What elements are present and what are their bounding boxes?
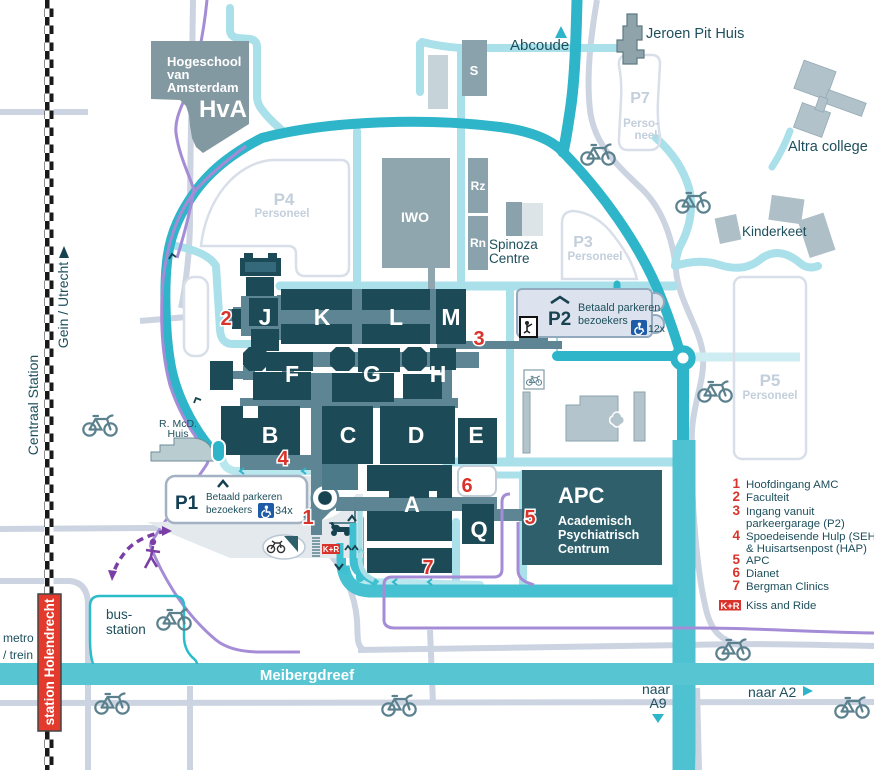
svg-text:APC: APC — [558, 483, 605, 508]
svg-text:»: » — [287, 540, 294, 554]
svg-text:P1: P1 — [175, 493, 199, 514]
svg-text:4: 4 — [277, 448, 289, 470]
svg-text:Q: Q — [470, 517, 487, 542]
svg-text:P7: P7 — [630, 90, 650, 107]
svg-text:Academisch: Academisch — [558, 514, 632, 528]
svg-text:Rz: Rz — [471, 179, 486, 193]
svg-text:E: E — [468, 422, 483, 448]
svg-text:Psychiatrisch: Psychiatrisch — [558, 528, 639, 542]
svg-text:bezoekers: bezoekers — [206, 505, 252, 516]
svg-text:2: 2 — [220, 308, 231, 330]
svg-text:Ingang vanuit: Ingang vanuit — [746, 506, 815, 518]
svg-text:J: J — [259, 304, 272, 330]
svg-text:Centrum: Centrum — [558, 542, 609, 556]
svg-text:34x: 34x — [275, 505, 293, 517]
svg-text:P5: P5 — [760, 371, 781, 390]
svg-text:Amsterdam: Amsterdam — [167, 80, 239, 95]
svg-text:Personeel: Personeel — [743, 390, 798, 402]
svg-text:Dianet: Dianet — [746, 568, 780, 580]
svg-text:Kinderkeet: Kinderkeet — [742, 224, 807, 239]
svg-text:Bergman Clinics: Bergman Clinics — [746, 581, 829, 593]
svg-text:Personeel: Personeel — [568, 251, 623, 263]
svg-text:Hoofdingang AMC: Hoofdingang AMC — [746, 479, 838, 491]
svg-text:Betaald parkeren: Betaald parkeren — [578, 302, 660, 314]
svg-text:Jeroen Pit Huis: Jeroen Pit Huis — [646, 26, 744, 42]
svg-text:H: H — [430, 361, 447, 387]
svg-text:Centraal Station: Centraal Station — [25, 355, 41, 455]
svg-text:Spoedeisende Hulp (SEH): Spoedeisende Hulp (SEH) — [746, 531, 874, 543]
svg-text:G: G — [363, 361, 381, 387]
svg-text:1: 1 — [302, 507, 313, 529]
svg-text:Huis: Huis — [167, 428, 188, 440]
svg-text:F: F — [285, 361, 299, 387]
svg-text:parkeergarage (P2): parkeergarage (P2) — [746, 518, 845, 530]
svg-text:Perso-: Perso- — [623, 118, 659, 130]
svg-text:P4: P4 — [274, 190, 295, 209]
svg-text:L: L — [389, 304, 403, 330]
svg-text:Abcoude: Abcoude — [510, 37, 569, 54]
svg-text:7: 7 — [732, 578, 740, 593]
svg-text:Betaald parkeren: Betaald parkeren — [206, 492, 282, 503]
svg-text:Altra college: Altra college — [788, 139, 868, 155]
svg-text:2: 2 — [732, 489, 740, 504]
svg-text:Rn: Rn — [470, 236, 486, 250]
svg-text:neel: neel — [634, 130, 657, 142]
svg-text:3: 3 — [473, 328, 484, 350]
svg-text:K: K — [314, 304, 331, 330]
svg-text:P2: P2 — [548, 309, 571, 330]
svg-text:7: 7 — [422, 557, 433, 579]
svg-text:naar A2: naar A2 — [748, 684, 796, 700]
svg-text:K+R: K+R — [323, 545, 339, 554]
svg-text:station Holendrecht: station Holendrecht — [42, 598, 57, 725]
svg-text:station: station — [106, 622, 146, 637]
svg-text:/ trein: / trein — [3, 648, 33, 662]
svg-text:IWO: IWO — [401, 209, 429, 225]
svg-text:6: 6 — [461, 475, 472, 497]
svg-text:A9: A9 — [649, 695, 666, 711]
svg-text:B: B — [262, 422, 279, 448]
svg-text:C: C — [340, 422, 357, 448]
svg-text:3: 3 — [732, 503, 740, 518]
svg-text:& Huisartsenpost (HAP): & Huisartsenpost (HAP) — [746, 543, 867, 555]
svg-text:Faculteit: Faculteit — [746, 492, 790, 504]
svg-text:bezoekers: bezoekers — [578, 315, 628, 327]
svg-text:12x: 12x — [648, 323, 666, 335]
svg-text:4: 4 — [732, 528, 740, 543]
svg-text:Spinoza: Spinoza — [489, 237, 538, 252]
svg-text:D: D — [408, 422, 425, 448]
svg-text:Centre: Centre — [489, 251, 530, 266]
svg-text:P3: P3 — [573, 234, 593, 251]
svg-text:metro: metro — [3, 631, 34, 645]
svg-text:M: M — [441, 304, 460, 330]
svg-text:HvA: HvA — [199, 96, 247, 123]
svg-text:Personeel: Personeel — [255, 208, 310, 220]
svg-text:Gein / Utrecht: Gein / Utrecht — [55, 262, 71, 348]
svg-text:Kiss and Ride: Kiss and Ride — [746, 600, 816, 612]
svg-text:bus-: bus- — [106, 607, 132, 622]
svg-text:APC: APC — [746, 555, 769, 567]
svg-text:S: S — [470, 63, 479, 78]
svg-text:K+R: K+R — [720, 601, 739, 612]
svg-text:A: A — [404, 492, 420, 517]
svg-text:Meibergdreef: Meibergdreef — [260, 667, 355, 684]
svg-text:5: 5 — [524, 507, 535, 529]
